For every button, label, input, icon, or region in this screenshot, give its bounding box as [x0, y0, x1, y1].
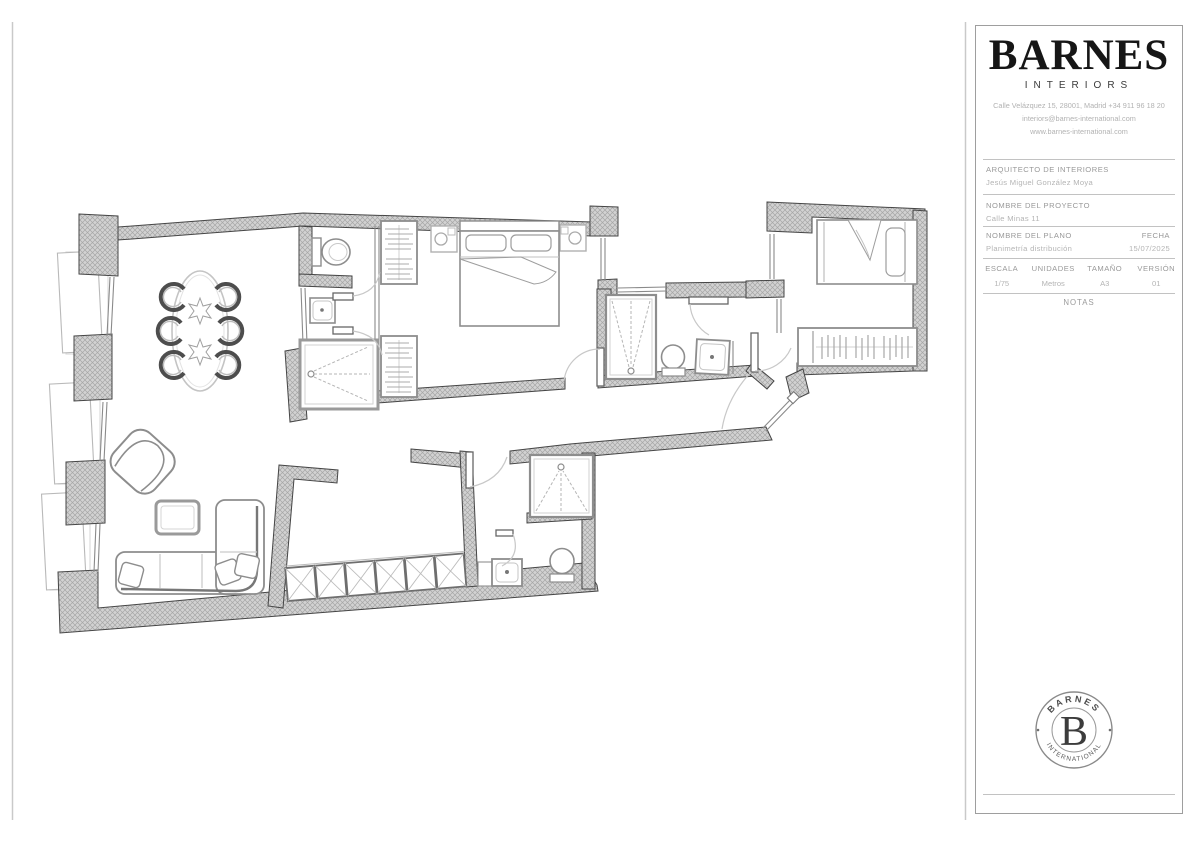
wall-lightwell-pier-c: [746, 280, 784, 298]
partition-bedroom2-west: [777, 299, 781, 333]
drawing-sheet: BARNES INTERIORS Calle Velázquez 15, 280…: [0, 0, 1191, 842]
pillow: [466, 235, 506, 251]
divider: [983, 794, 1175, 795]
units-value: Metros: [1028, 279, 1080, 288]
toilet: [322, 239, 350, 265]
brand-subtitle: INTERIORS: [976, 80, 1182, 91]
size-field: TAMAÑO A3: [1079, 264, 1131, 288]
size-value: A3: [1079, 279, 1131, 288]
architect-name: Jesús Miguel González Moya: [986, 178, 1093, 187]
doors: [333, 272, 799, 566]
toilet-tank: [312, 238, 321, 266]
door-arc: [722, 372, 751, 429]
version-value: 01: [1131, 279, 1183, 288]
throw-pillow: [118, 562, 145, 589]
wall-lightwell-west-pier: [590, 206, 618, 236]
stamp-monogram: B: [1060, 709, 1088, 755]
window-lightwell-east: [770, 234, 774, 279]
toilet-tank: [550, 574, 574, 582]
window-left-3: [94, 524, 100, 572]
scale-label: ESCALA: [976, 264, 1028, 273]
divider: [983, 258, 1175, 259]
date-label: FECHA: [1142, 231, 1170, 240]
plan-name: Planimetría distribución: [986, 244, 1072, 253]
window-lightwell-south: [618, 287, 666, 292]
stamp-dot-left: [1037, 729, 1040, 732]
brand-name: BARNES: [976, 34, 1182, 77]
toilet-tank: [662, 368, 685, 376]
wardrobe-master-2: [381, 336, 417, 397]
door-arc: [353, 272, 380, 296]
wall-ensuite-south: [299, 274, 352, 288]
window-lightwell-west: [601, 238, 605, 280]
plan-label: NOMBRE DEL PLANO: [986, 231, 1072, 240]
sink-drain: [320, 308, 324, 312]
door-leaf: [466, 452, 473, 488]
divider: [983, 226, 1175, 227]
wardrobe-master-1: [381, 221, 417, 284]
notes-label: NOTAS: [976, 298, 1182, 307]
bed-headboard: [460, 221, 559, 231]
bath-cabinet: [478, 562, 492, 586]
wardrobe-bedroom2: [798, 328, 917, 366]
divider: [983, 293, 1175, 294]
dining-set: [158, 271, 242, 391]
master-ensuite: [300, 238, 378, 409]
living-room-furniture: [105, 424, 264, 594]
door-leaf: [689, 297, 728, 304]
facade-window-shutters: [42, 251, 108, 590]
door-leaf: [333, 293, 353, 300]
toilet: [550, 549, 574, 574]
partition-lobby-west: [301, 288, 307, 344]
barnes-stamp: BARNES INTERNATIONAL B: [994, 650, 1154, 810]
sink: [695, 339, 730, 375]
nightstand-left: [431, 226, 457, 252]
door-arc: [470, 457, 507, 487]
version-label: VERSIÓN: [1131, 264, 1183, 273]
door-leaf: [496, 530, 513, 536]
armchair: [105, 424, 181, 499]
date-value: 15/07/2025: [1129, 244, 1170, 253]
single-bed: [817, 220, 917, 284]
company-address: Calle Velázquez 15, 28001, Madrid +34 91…: [980, 100, 1178, 138]
pillow: [886, 228, 905, 276]
toilet: [662, 345, 685, 369]
address-line: www.barnes-international.com: [980, 126, 1178, 139]
scale-field: ESCALA 1/75: [976, 264, 1028, 288]
units-field: UNIDADES Metros: [1028, 264, 1080, 288]
bathroom2-furniture: [606, 295, 730, 379]
nightstand-right: [560, 225, 586, 251]
wall-ensuite-west: [299, 226, 312, 279]
address-line: Calle Velázquez 15, 28001, Madrid +34 91…: [980, 100, 1178, 113]
sink-drain: [505, 570, 509, 574]
address-line: interiors@barnes-international.com: [980, 113, 1178, 126]
version-field: VERSIÓN 01: [1131, 264, 1183, 288]
master-bedroom-furniture: [381, 221, 586, 397]
shower-room: [300, 340, 378, 409]
door-leaf: [751, 333, 758, 372]
door-arc: [564, 349, 600, 381]
project-name: Calle Minas 11: [986, 214, 1040, 223]
stamp-dot-right: [1109, 729, 1112, 732]
architect-label: ARQUITECTO DE INTERIORES: [986, 165, 1109, 174]
entry-door-lines: [763, 399, 794, 431]
throw-pillow: [234, 553, 260, 579]
wall-corner-topleft: [79, 214, 118, 276]
window-left-2: [100, 402, 107, 461]
wall-pier-left-2: [74, 334, 112, 401]
brand-logo: BARNES INTERIORS: [976, 34, 1182, 91]
wall-lightwell-south: [666, 282, 746, 298]
title-block: BARNES INTERIORS Calle Velázquez 15, 280…: [975, 25, 1183, 814]
wall-pier-left-3: [66, 460, 105, 525]
units-label: UNIDADES: [1028, 264, 1080, 273]
divider: [983, 194, 1175, 195]
door-arc: [755, 348, 791, 371]
wall-hall-south-a: [411, 449, 468, 468]
scale-value: 1/75: [976, 279, 1028, 288]
dining-table: [172, 271, 228, 391]
door-arc: [690, 304, 709, 335]
bedroom2-furniture: [798, 220, 917, 366]
divider: [983, 159, 1175, 160]
door-leaf: [597, 348, 604, 386]
double-bed: [460, 221, 559, 326]
pillow: [511, 235, 551, 251]
size-label: TAMAÑO: [1079, 264, 1131, 273]
project-label: NOMBRE DEL PROYECTO: [986, 201, 1090, 210]
door-swing-arcs: [353, 272, 791, 566]
door-leaf: [333, 327, 353, 334]
plan-meta-row: ESCALA 1/75 UNIDADES Metros TAMAÑO A3 VE…: [976, 264, 1182, 288]
entry-door: [763, 392, 799, 431]
